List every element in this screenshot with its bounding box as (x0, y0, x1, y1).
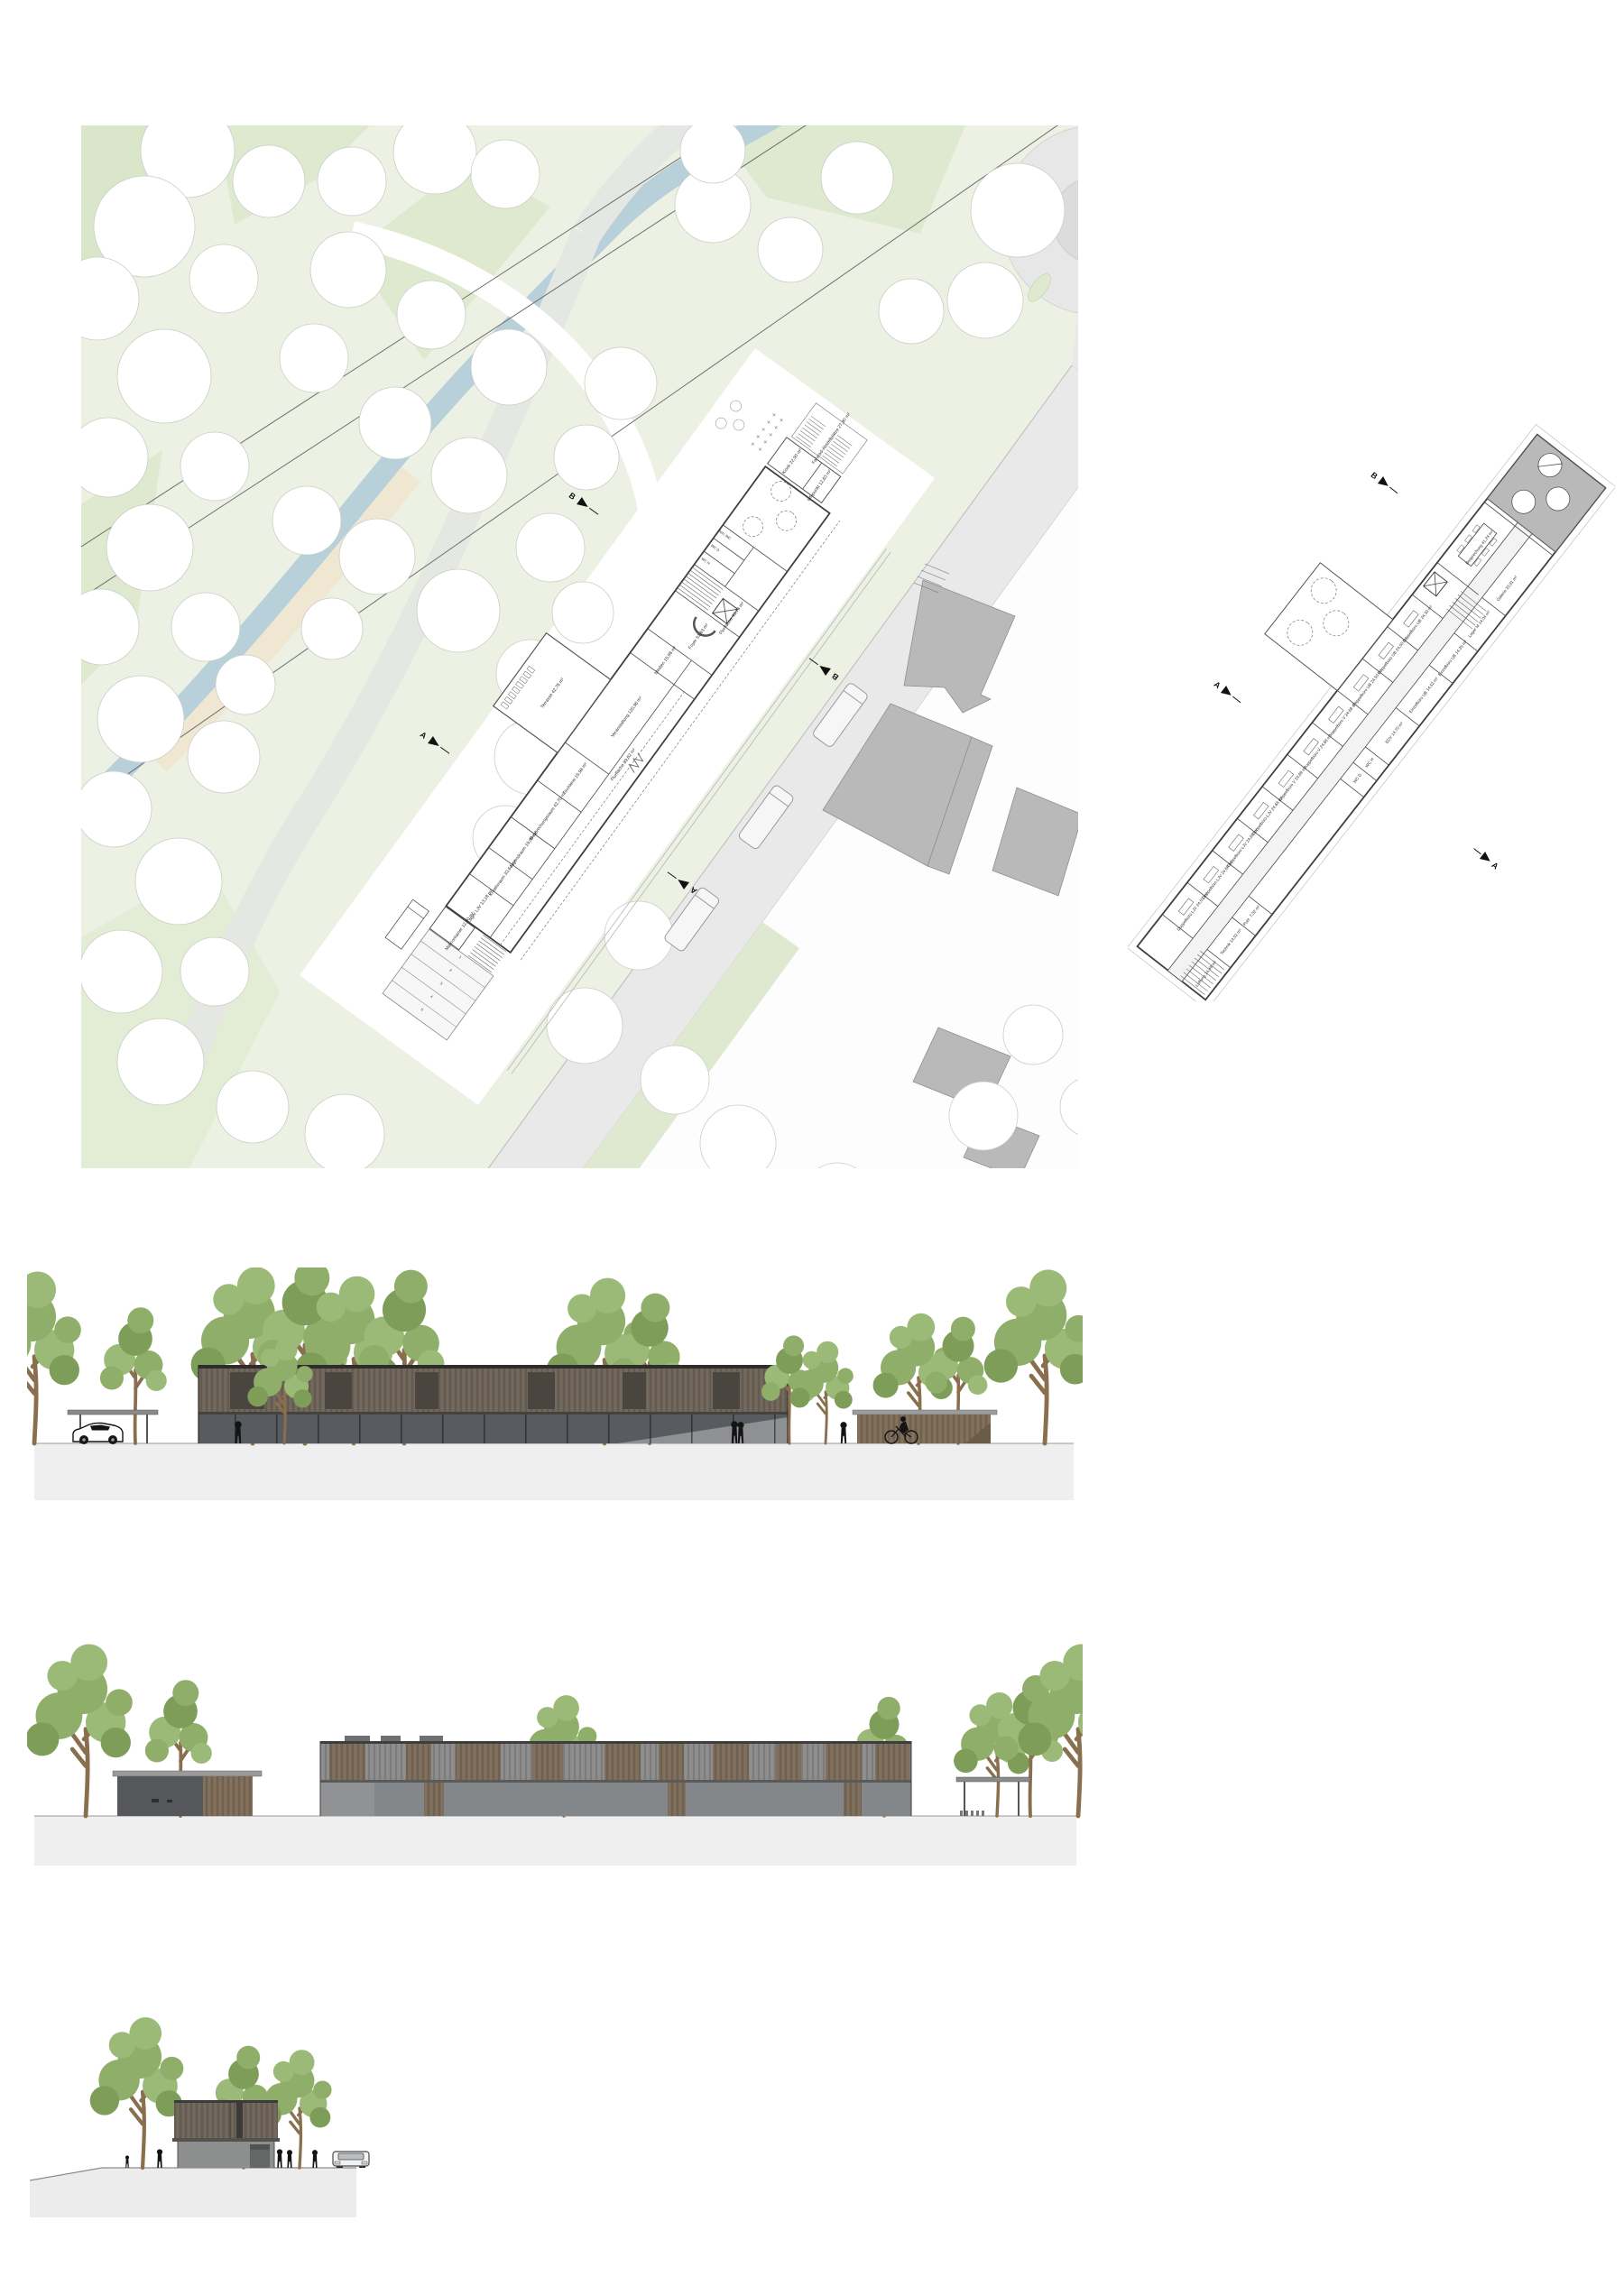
parapet (174, 2100, 278, 2103)
lower-facade (320, 1783, 911, 1816)
elevation-south (27, 1640, 1083, 1875)
main-building-elevation (320, 1736, 911, 1816)
ground-band (34, 1816, 1076, 1866)
marker-label: A (1213, 679, 1223, 690)
upper-floor-plan: Doppelbüro LJV 24,53 m² Doppelbüro LJV 2… (1128, 424, 1615, 1001)
upper-window (236, 2103, 243, 2139)
annex-building (113, 1771, 262, 1816)
floor-slab-line (198, 1412, 788, 1415)
gable-building (172, 2100, 280, 2168)
car-front (333, 2152, 369, 2168)
floor-slab-line (172, 2138, 280, 2142)
elevation-gable (23, 2012, 401, 2237)
floor-slab-line (320, 1780, 911, 1783)
drawing-sheet: { "colors":{ "park":"#ecf1e4","park_dark… (0, 0, 1624, 2295)
fp-marker-b: B (1370, 470, 1400, 497)
fp-marker-a1: A (1213, 679, 1243, 706)
carport (956, 1777, 1030, 1816)
fp-marker-a2: A (1471, 845, 1500, 871)
marker-label: B (1370, 470, 1380, 481)
annex-building (853, 1410, 997, 1443)
ground-band (34, 1443, 1074, 1500)
elevation-north (27, 1267, 1083, 1511)
ground-band (30, 2168, 356, 2217)
marker-label: A (1490, 861, 1500, 871)
parapet (320, 1741, 911, 1744)
site-plan: 5 4 3 2 1 (81, 125, 1078, 1168)
floor-plan-bar: Doppelbüro LJV 24,53 m² Doppelbüro LJV 2… (1128, 424, 1615, 1001)
